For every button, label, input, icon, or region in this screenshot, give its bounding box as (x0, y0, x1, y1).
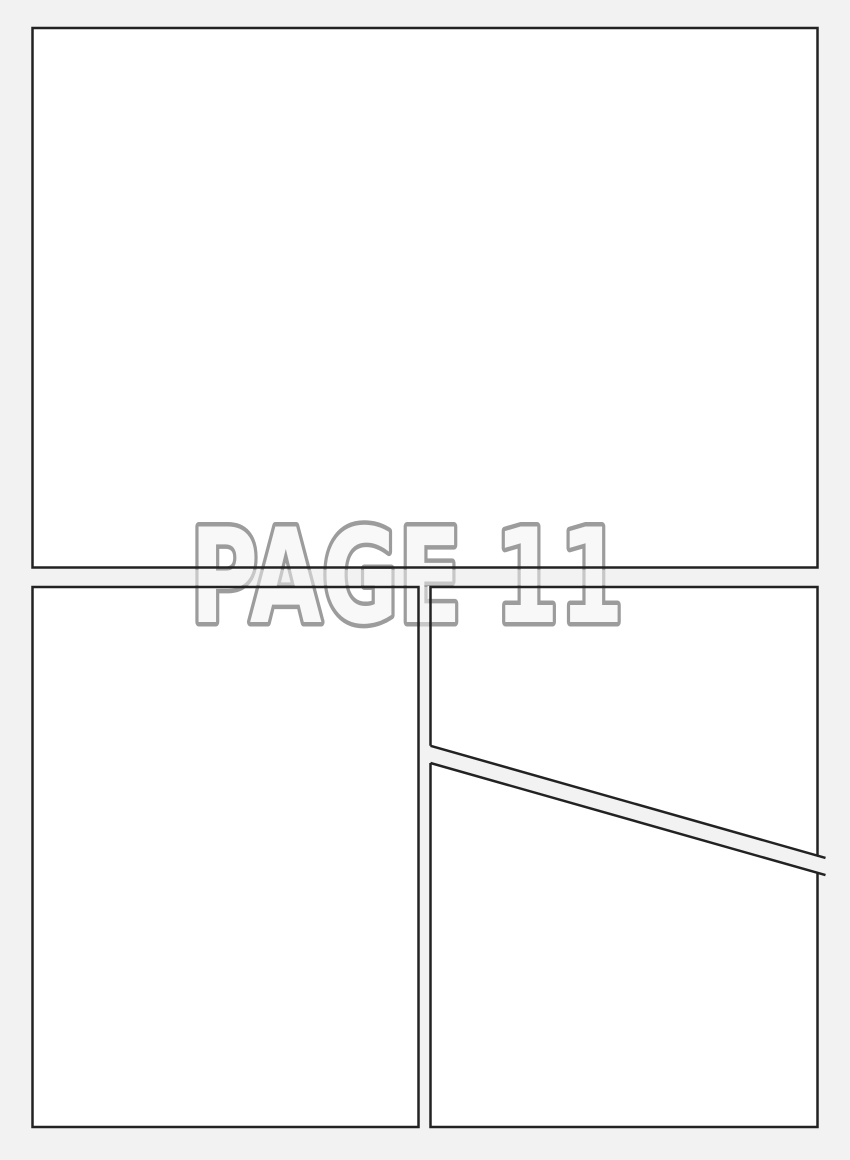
comic-page-template: PAGE 11 (0, 0, 850, 1160)
panel-2-area (33, 587, 419, 1127)
gutter-vertical (420, 587, 429, 1127)
panel-1-area (33, 28, 818, 568)
gutter-horizontal (30, 570, 820, 585)
page-canvas: PAGE 11 (0, 0, 850, 1160)
